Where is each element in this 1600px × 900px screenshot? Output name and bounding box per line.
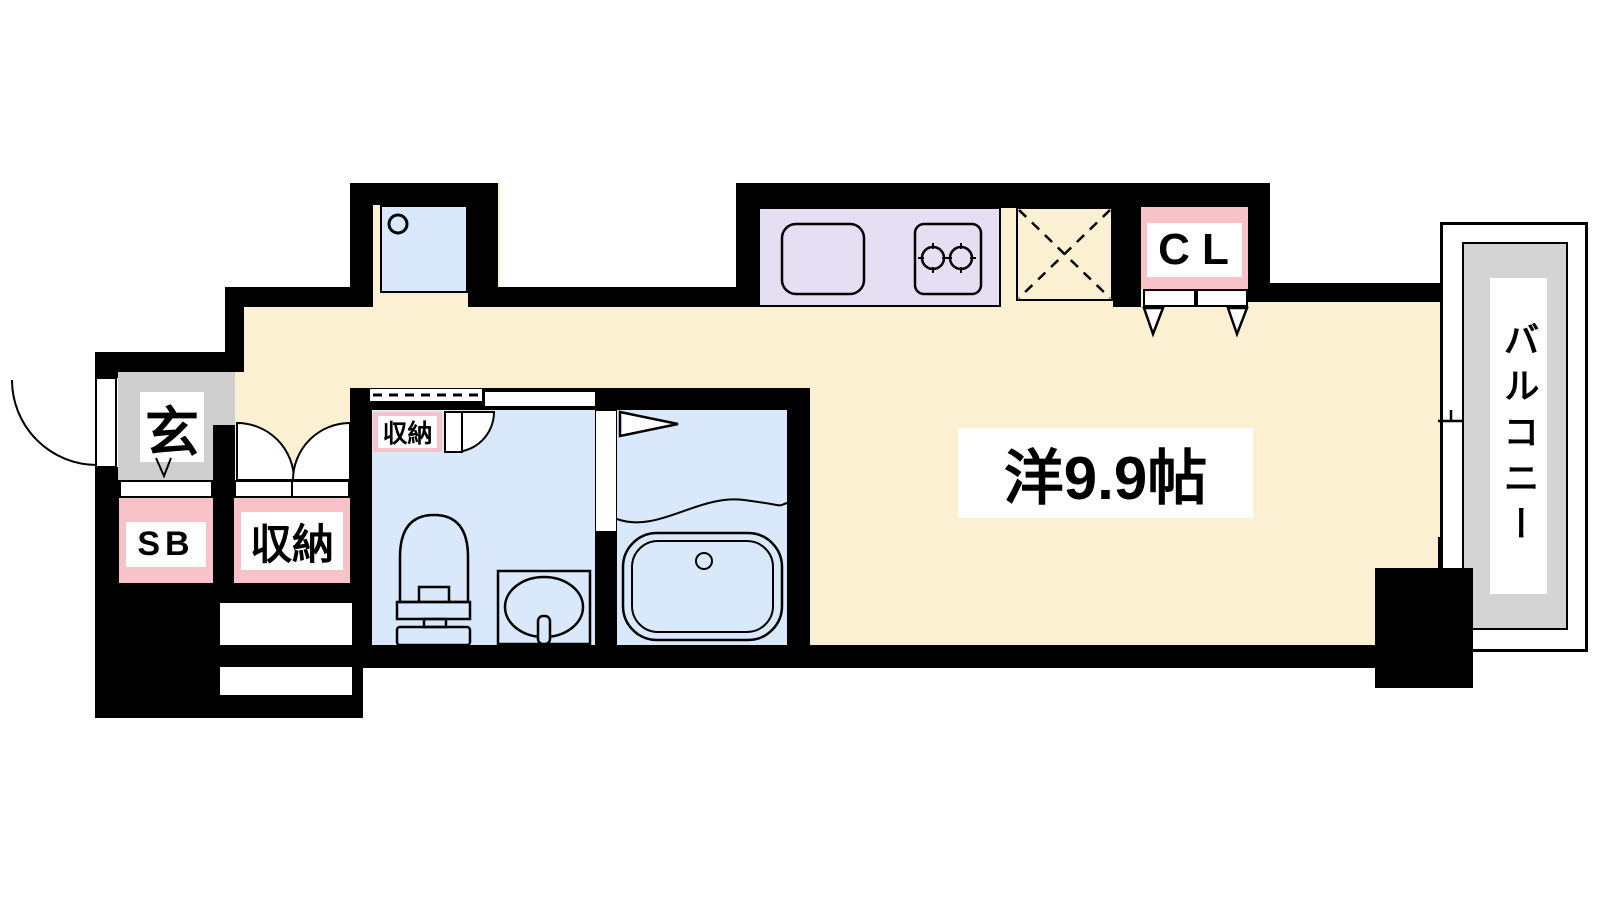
shoe-box-label: SB: [126, 522, 206, 567]
entry-storage-label-text: 収納: [250, 511, 334, 572]
bathroom-floor: [617, 410, 787, 645]
washing-machine-space: [380, 205, 468, 293]
pillar: [1375, 568, 1473, 688]
balcony-label: バルコニー: [1490, 278, 1547, 594]
storage-door-panel-divider: [291, 482, 293, 496]
main-room-label-text: 洋9.9帖: [1004, 430, 1207, 517]
refrigerator-space: [1016, 207, 1113, 301]
genkan-label-text: 玄: [145, 388, 199, 467]
closet-label: CL: [1147, 223, 1242, 277]
washroom-storage-label-text: 収納: [382, 414, 432, 450]
storage-door-panels: [234, 480, 350, 498]
main-room-label: 洋9.9帖: [958, 428, 1253, 518]
hanger-pipe-strip: [370, 389, 482, 401]
floor-plan: CL SB 収納 収納 玄 洋9.9帖 バルコニー: [0, 0, 1600, 900]
washroom-door-opening: [483, 390, 597, 408]
wall-fridge-closet-stub: [1113, 200, 1141, 307]
bathroom-door: [595, 410, 617, 532]
wall-bottom: [350, 645, 1448, 668]
washroom-storage-label: 収納: [378, 416, 437, 448]
genkan-label: 玄: [140, 392, 204, 462]
closet-label-text: CL: [1158, 225, 1241, 275]
wall-step-horizontal: [225, 287, 373, 307]
wall-top-main: [736, 183, 1270, 208]
shoe-box-label-text: SB: [137, 525, 194, 564]
entrance-door-opening: [95, 378, 118, 467]
balcony-label-text: バルコニー: [1493, 321, 1545, 551]
genkan-step-strip: [119, 480, 213, 498]
wall-recess-bottom: [468, 287, 760, 307]
closet-door-panel-right: [1196, 289, 1248, 307]
kitchen-counter: [758, 207, 1001, 307]
entry-storage-label: 収納: [241, 512, 343, 570]
closet-door-panel-left: [1143, 289, 1196, 307]
pipe-space-vent-upper: [220, 603, 352, 645]
pipe-space-vent-lower: [220, 667, 352, 695]
wall-top-right: [1262, 283, 1462, 302]
